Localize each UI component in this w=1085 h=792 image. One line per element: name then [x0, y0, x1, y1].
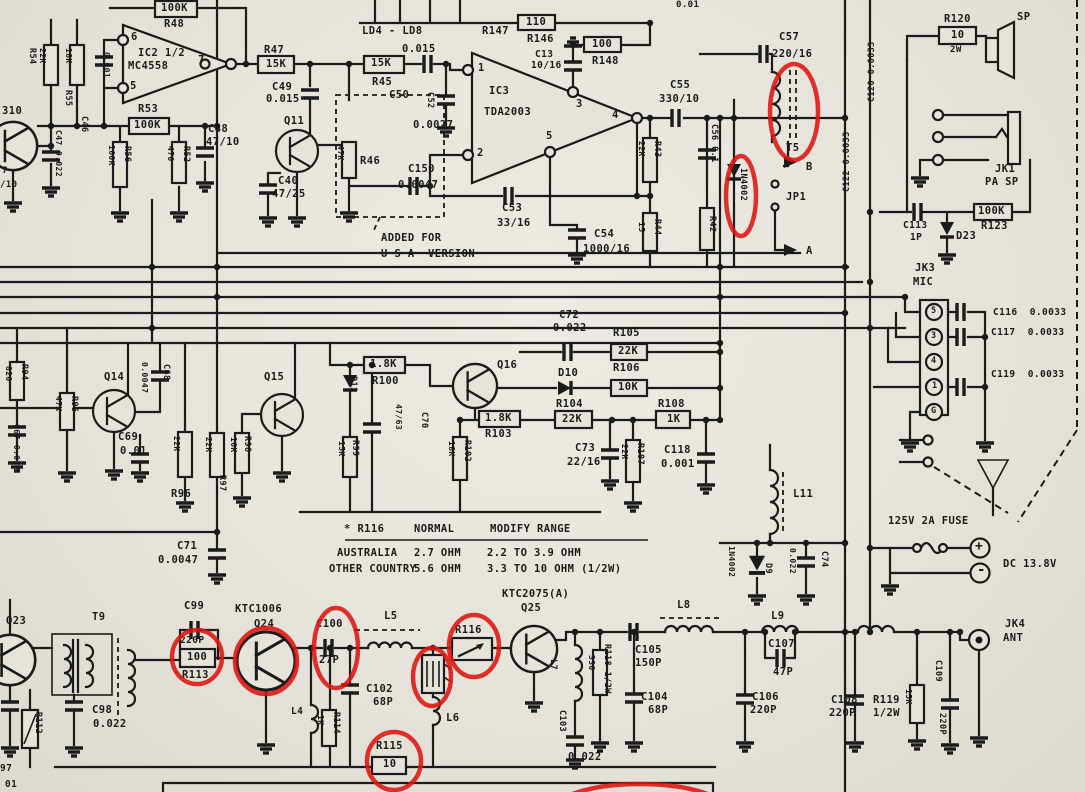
- component-label: 100K: [107, 145, 115, 166]
- component-label: C57: [779, 32, 799, 43]
- component-label: * R116: [344, 524, 384, 535]
- component-label: PA SP: [985, 177, 1019, 188]
- component-label: 22K: [172, 436, 180, 452]
- component-label: 2.2 TO 3.9 OHM: [487, 548, 581, 559]
- component-label: C40: [278, 176, 298, 187]
- component-label: R114: [331, 712, 340, 734]
- component-label: 1000/16: [583, 244, 630, 255]
- component-label: 0.0047: [158, 555, 198, 566]
- component-label: OTHER COUNTRY: [329, 564, 416, 575]
- component-label: +: [975, 540, 983, 554]
- component-label: C109: [933, 660, 942, 682]
- component-label: /10: [0, 181, 17, 190]
- component-label: ANT: [1003, 633, 1023, 644]
- component-label: R48: [164, 19, 184, 30]
- component-label: 47K: [336, 145, 344, 161]
- component-label: 15K: [337, 441, 345, 457]
- schematic-page: 100KR48657IC2 1/2MC4558R4715KC490.015Q11…: [0, 0, 1085, 792]
- component-label: Q24: [254, 619, 274, 630]
- component-label: 100: [187, 652, 207, 663]
- component-label: R55: [63, 90, 72, 107]
- component-label: JP1: [786, 192, 806, 203]
- component-label: R107: [635, 443, 644, 465]
- component-label: C54: [594, 229, 614, 240]
- component-label: 01: [5, 780, 17, 790]
- component-label: C105: [635, 645, 662, 656]
- component-label: 1N4002: [727, 546, 735, 577]
- component-label: 100K: [134, 120, 161, 131]
- component-label: 150P: [635, 658, 662, 669]
- q25-part: KTC2075(A): [502, 589, 569, 600]
- component-label: R98: [242, 436, 251, 453]
- component-label: ADDED FOR: [381, 233, 442, 244]
- component-label: C108: [831, 695, 858, 706]
- component-label: C50: [389, 90, 409, 101]
- component-label: C53: [502, 203, 522, 214]
- component-label: C72: [559, 310, 579, 321]
- component-label: 220P: [750, 705, 777, 716]
- component-label: C46: [79, 116, 88, 133]
- component-label: Q16: [497, 360, 517, 371]
- component-label: R119: [873, 695, 900, 706]
- component-label: U S A VERSION: [381, 249, 475, 260]
- component-label: D23: [956, 231, 976, 242]
- component-label: R147: [482, 26, 509, 37]
- component-label: 2: [477, 148, 484, 159]
- component-label: 330: [587, 655, 595, 671]
- component-label: R43: [652, 141, 661, 158]
- fuse-label: 125V 2A FUSE: [888, 516, 969, 527]
- component-label: L5: [384, 611, 397, 622]
- component-label: R118 1/2W: [602, 644, 611, 694]
- component-label: 22K: [38, 48, 46, 64]
- component-label: 5: [130, 81, 137, 92]
- component-label: R103: [485, 429, 512, 440]
- component-label: R54: [27, 48, 36, 65]
- component-label: 1P: [910, 233, 922, 243]
- component-label: R108: [658, 399, 685, 410]
- component-label: 330/10: [659, 94, 699, 105]
- component-label: 10K: [229, 437, 237, 453]
- component-label: 68P: [373, 697, 393, 708]
- component-label: R100: [372, 376, 399, 387]
- component-label: L8: [677, 600, 690, 611]
- jk1-label: JK1: [995, 164, 1015, 175]
- label-layer: 100KR48657IC2 1/2MC4558R4715KC490.015Q11…: [0, 0, 1085, 792]
- component-label: C104: [641, 692, 668, 703]
- component-label: T5: [786, 143, 799, 154]
- component-label: 100K: [978, 206, 1005, 217]
- component-label: C102: [366, 684, 393, 695]
- component-label: 3: [576, 99, 583, 110]
- component-label: NORMAL: [414, 524, 454, 535]
- component-label: 68P: [648, 705, 668, 716]
- component-label: 1K: [667, 414, 680, 425]
- component-label: 47K: [54, 396, 62, 412]
- component-label: C100: [316, 619, 343, 630]
- component-label: D10: [558, 368, 578, 379]
- component-label: 1/2W: [873, 708, 900, 719]
- component-label: C118: [664, 445, 691, 456]
- component-label: 0.0027: [413, 120, 453, 131]
- component-label: 0.0047: [140, 362, 148, 393]
- component-label: 0.001: [661, 459, 695, 470]
- component-label: D9: [763, 563, 772, 574]
- component-label: R148: [592, 56, 619, 67]
- component-label: 7: [198, 55, 205, 66]
- jk4-label: JK4: [1005, 619, 1025, 630]
- component-label: R94: [19, 364, 28, 381]
- component-label: 15K: [266, 59, 286, 70]
- component-label: R120: [944, 14, 971, 25]
- component-label: C150: [408, 164, 435, 175]
- component-label: R99: [350, 440, 359, 457]
- component-label: L6: [446, 713, 459, 724]
- component-label: C120 0.0033: [868, 41, 877, 102]
- component-label: 10/16: [531, 61, 562, 71]
- component-label: 3.3 TO 10 OHM (1/2W): [487, 564, 621, 575]
- component-label: 220P: [180, 636, 204, 646]
- component-label: R102: [462, 440, 471, 462]
- component-label: 22K: [204, 437, 212, 453]
- component-label: 1K: [316, 715, 324, 725]
- component-label: C117 0.0033: [991, 328, 1064, 338]
- component-label: G: [931, 407, 937, 416]
- component-label: R53: [138, 104, 158, 115]
- component-label: C113: [903, 221, 927, 231]
- component-label: C67 0.022: [12, 424, 20, 471]
- component-label: 110: [526, 17, 546, 28]
- q24-part: KTC1006: [235, 604, 282, 615]
- component-label: R44: [652, 219, 661, 236]
- component-label: 0.01: [120, 446, 147, 457]
- component-label: R106: [613, 363, 640, 374]
- component-label: 18K: [447, 441, 455, 457]
- component-label: C49: [272, 82, 292, 93]
- component-label: 1: [932, 382, 938, 391]
- component-label: LD4 - LD8: [362, 26, 423, 37]
- component-label: 22K: [620, 444, 628, 460]
- component-label: 22K: [562, 414, 582, 425]
- component-label: 7: [2, 167, 8, 176]
- component-label: 97: [0, 764, 12, 774]
- component-label: 3: [931, 332, 937, 341]
- component-label: Q11: [284, 116, 304, 127]
- component-label: 0.022: [553, 323, 587, 334]
- component-label: 10: [383, 759, 396, 770]
- component-label: 22K: [637, 141, 645, 157]
- component-label: Q14: [104, 372, 124, 383]
- component-label: 470: [166, 146, 174, 162]
- component-label: 1N4002: [738, 168, 747, 201]
- component-label: 15: [637, 222, 645, 232]
- component-label: C99: [184, 601, 204, 612]
- component-label: L11: [793, 489, 813, 500]
- component-label: 220P: [937, 713, 946, 735]
- component-label: R97: [217, 475, 226, 492]
- component-label: C55: [670, 80, 690, 91]
- component-label: MIC: [913, 277, 933, 288]
- component-label: C74: [819, 551, 828, 568]
- component-label: C106: [752, 692, 779, 703]
- component-label: 47/25: [272, 189, 306, 200]
- component-label: 5: [546, 131, 553, 142]
- ic3-part: TDA2003: [484, 107, 531, 118]
- component-label: R95: [69, 396, 78, 413]
- component-label: 4: [931, 357, 937, 366]
- component-label: B: [806, 162, 813, 173]
- component-label: 5.6 OHM: [414, 564, 461, 575]
- component-label: 0.015: [402, 44, 436, 55]
- component-label: R47: [264, 45, 284, 56]
- component-label: 15K: [904, 689, 912, 705]
- component-label: 27P: [319, 655, 339, 666]
- component-label: R116: [455, 625, 482, 636]
- ic2-label: IC2 1/2: [138, 48, 185, 59]
- component-label: 6: [131, 32, 138, 43]
- component-label: Q15: [264, 372, 284, 383]
- component-label: D11: [348, 376, 357, 393]
- speaker-label: SP: [1017, 12, 1030, 23]
- component-label: C71: [177, 541, 197, 552]
- component-label: R146: [527, 34, 554, 45]
- component-label: 0.022: [93, 719, 127, 730]
- dc-voltage-label: DC 13.8V: [1003, 559, 1057, 570]
- component-label: L7: [548, 659, 557, 670]
- jk3-label: JK3: [915, 263, 935, 274]
- component-label: 0.001: [102, 52, 110, 78]
- component-label: 1: [478, 63, 485, 74]
- component-label: R52: [181, 146, 190, 163]
- component-label: 0.015: [266, 94, 300, 105]
- component-label: 820: [4, 366, 12, 382]
- component-label: MODIFY RANGE: [490, 524, 571, 535]
- component-label: C122 0.0033: [843, 131, 852, 192]
- component-label: C119 0.0033: [991, 370, 1064, 380]
- component-label: R115: [376, 741, 403, 752]
- component-label: 47/10: [206, 137, 240, 148]
- component-label: Q23: [6, 616, 26, 627]
- component-label: -: [977, 563, 986, 578]
- component-label: C48: [208, 124, 228, 135]
- component-label: 5: [931, 307, 937, 316]
- component-label: A: [806, 246, 813, 257]
- ic2-part: MC4558: [128, 61, 168, 72]
- component-label: 220/16: [772, 49, 812, 60]
- component-label: 100K: [161, 3, 188, 14]
- component-label: R123: [981, 221, 1008, 232]
- component-label: R96: [171, 489, 191, 500]
- component-label: 0.01: [676, 1, 699, 10]
- component-label: C103: [557, 710, 566, 732]
- component-label: T9: [92, 612, 105, 623]
- component-label: C70: [419, 412, 428, 429]
- component-label: 18K: [64, 48, 72, 64]
- component-label: C69: [118, 432, 138, 443]
- component-label: 33/16: [497, 218, 531, 229]
- component-label: 0.0047: [398, 180, 438, 191]
- component-label: 4: [612, 110, 619, 121]
- component-label: 220P: [829, 708, 856, 719]
- component-label: 100: [592, 39, 612, 50]
- component-label: C47 0.022: [54, 130, 62, 177]
- component-label: 0.022: [568, 752, 602, 763]
- component-label: 2.7 OHM: [414, 548, 461, 559]
- component-label: C107: [768, 639, 795, 650]
- component-label: 10K: [618, 382, 638, 393]
- component-label: 47P: [773, 667, 793, 678]
- component-label: C68: [161, 364, 170, 381]
- component-label: C98: [92, 705, 112, 716]
- component-label: 0.022: [788, 548, 796, 574]
- ic3-label: IC3: [489, 86, 509, 97]
- component-label: R105: [613, 328, 640, 339]
- component-label: AUSTRALIA: [337, 548, 398, 559]
- component-label: 15K: [371, 58, 391, 69]
- component-label: C13: [535, 50, 553, 60]
- component-label: 1.8K: [485, 413, 512, 424]
- component-label: Q25: [521, 603, 541, 614]
- component-label: 10: [951, 30, 964, 41]
- component-label: L4: [291, 707, 303, 717]
- component-label: C73: [575, 443, 595, 454]
- component-label: 22/16: [567, 457, 601, 468]
- component-label: R112: [33, 712, 42, 734]
- component-label: L9: [771, 611, 784, 622]
- component-label: R45: [372, 77, 392, 88]
- component-label: C56 0.1: [709, 124, 718, 163]
- component-label: R113: [182, 670, 209, 681]
- component-label: R46: [360, 156, 380, 167]
- component-label: R104: [556, 399, 583, 410]
- component-label: 310: [2, 106, 22, 117]
- component-label: C116 0.0033: [993, 308, 1066, 318]
- component-label: 2W: [950, 46, 962, 55]
- component-label: R56: [122, 146, 131, 163]
- component-label: R42: [707, 216, 716, 233]
- component-label: 22K: [618, 346, 638, 357]
- component-label: 47/63: [394, 404, 402, 430]
- component-label: 1.8K: [370, 359, 397, 370]
- component-label: C52: [425, 92, 434, 109]
